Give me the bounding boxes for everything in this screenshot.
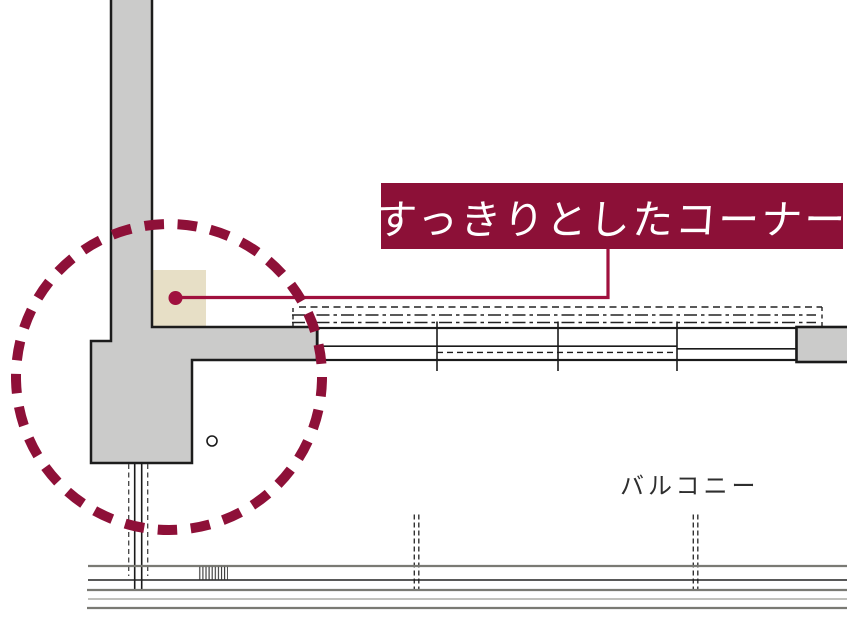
- callout-leader-dot: [169, 291, 183, 305]
- floor-plan-detail: すっきりとしたコーナー バルコニー: [0, 0, 847, 627]
- callout-label: すっきりとしたコーナー: [374, 186, 847, 246]
- window-frame: [318, 328, 797, 360]
- plan-drawing: [0, 0, 847, 627]
- railing-hatch-block: [198, 567, 228, 580]
- balcony-label: バルコニー: [620, 466, 760, 501]
- floor-drain-symbol: [207, 436, 217, 446]
- callout-banner: すっきりとしたコーナー: [381, 183, 843, 249]
- callout-leader-line: [181, 249, 608, 298]
- wall-block-right: [797, 327, 847, 362]
